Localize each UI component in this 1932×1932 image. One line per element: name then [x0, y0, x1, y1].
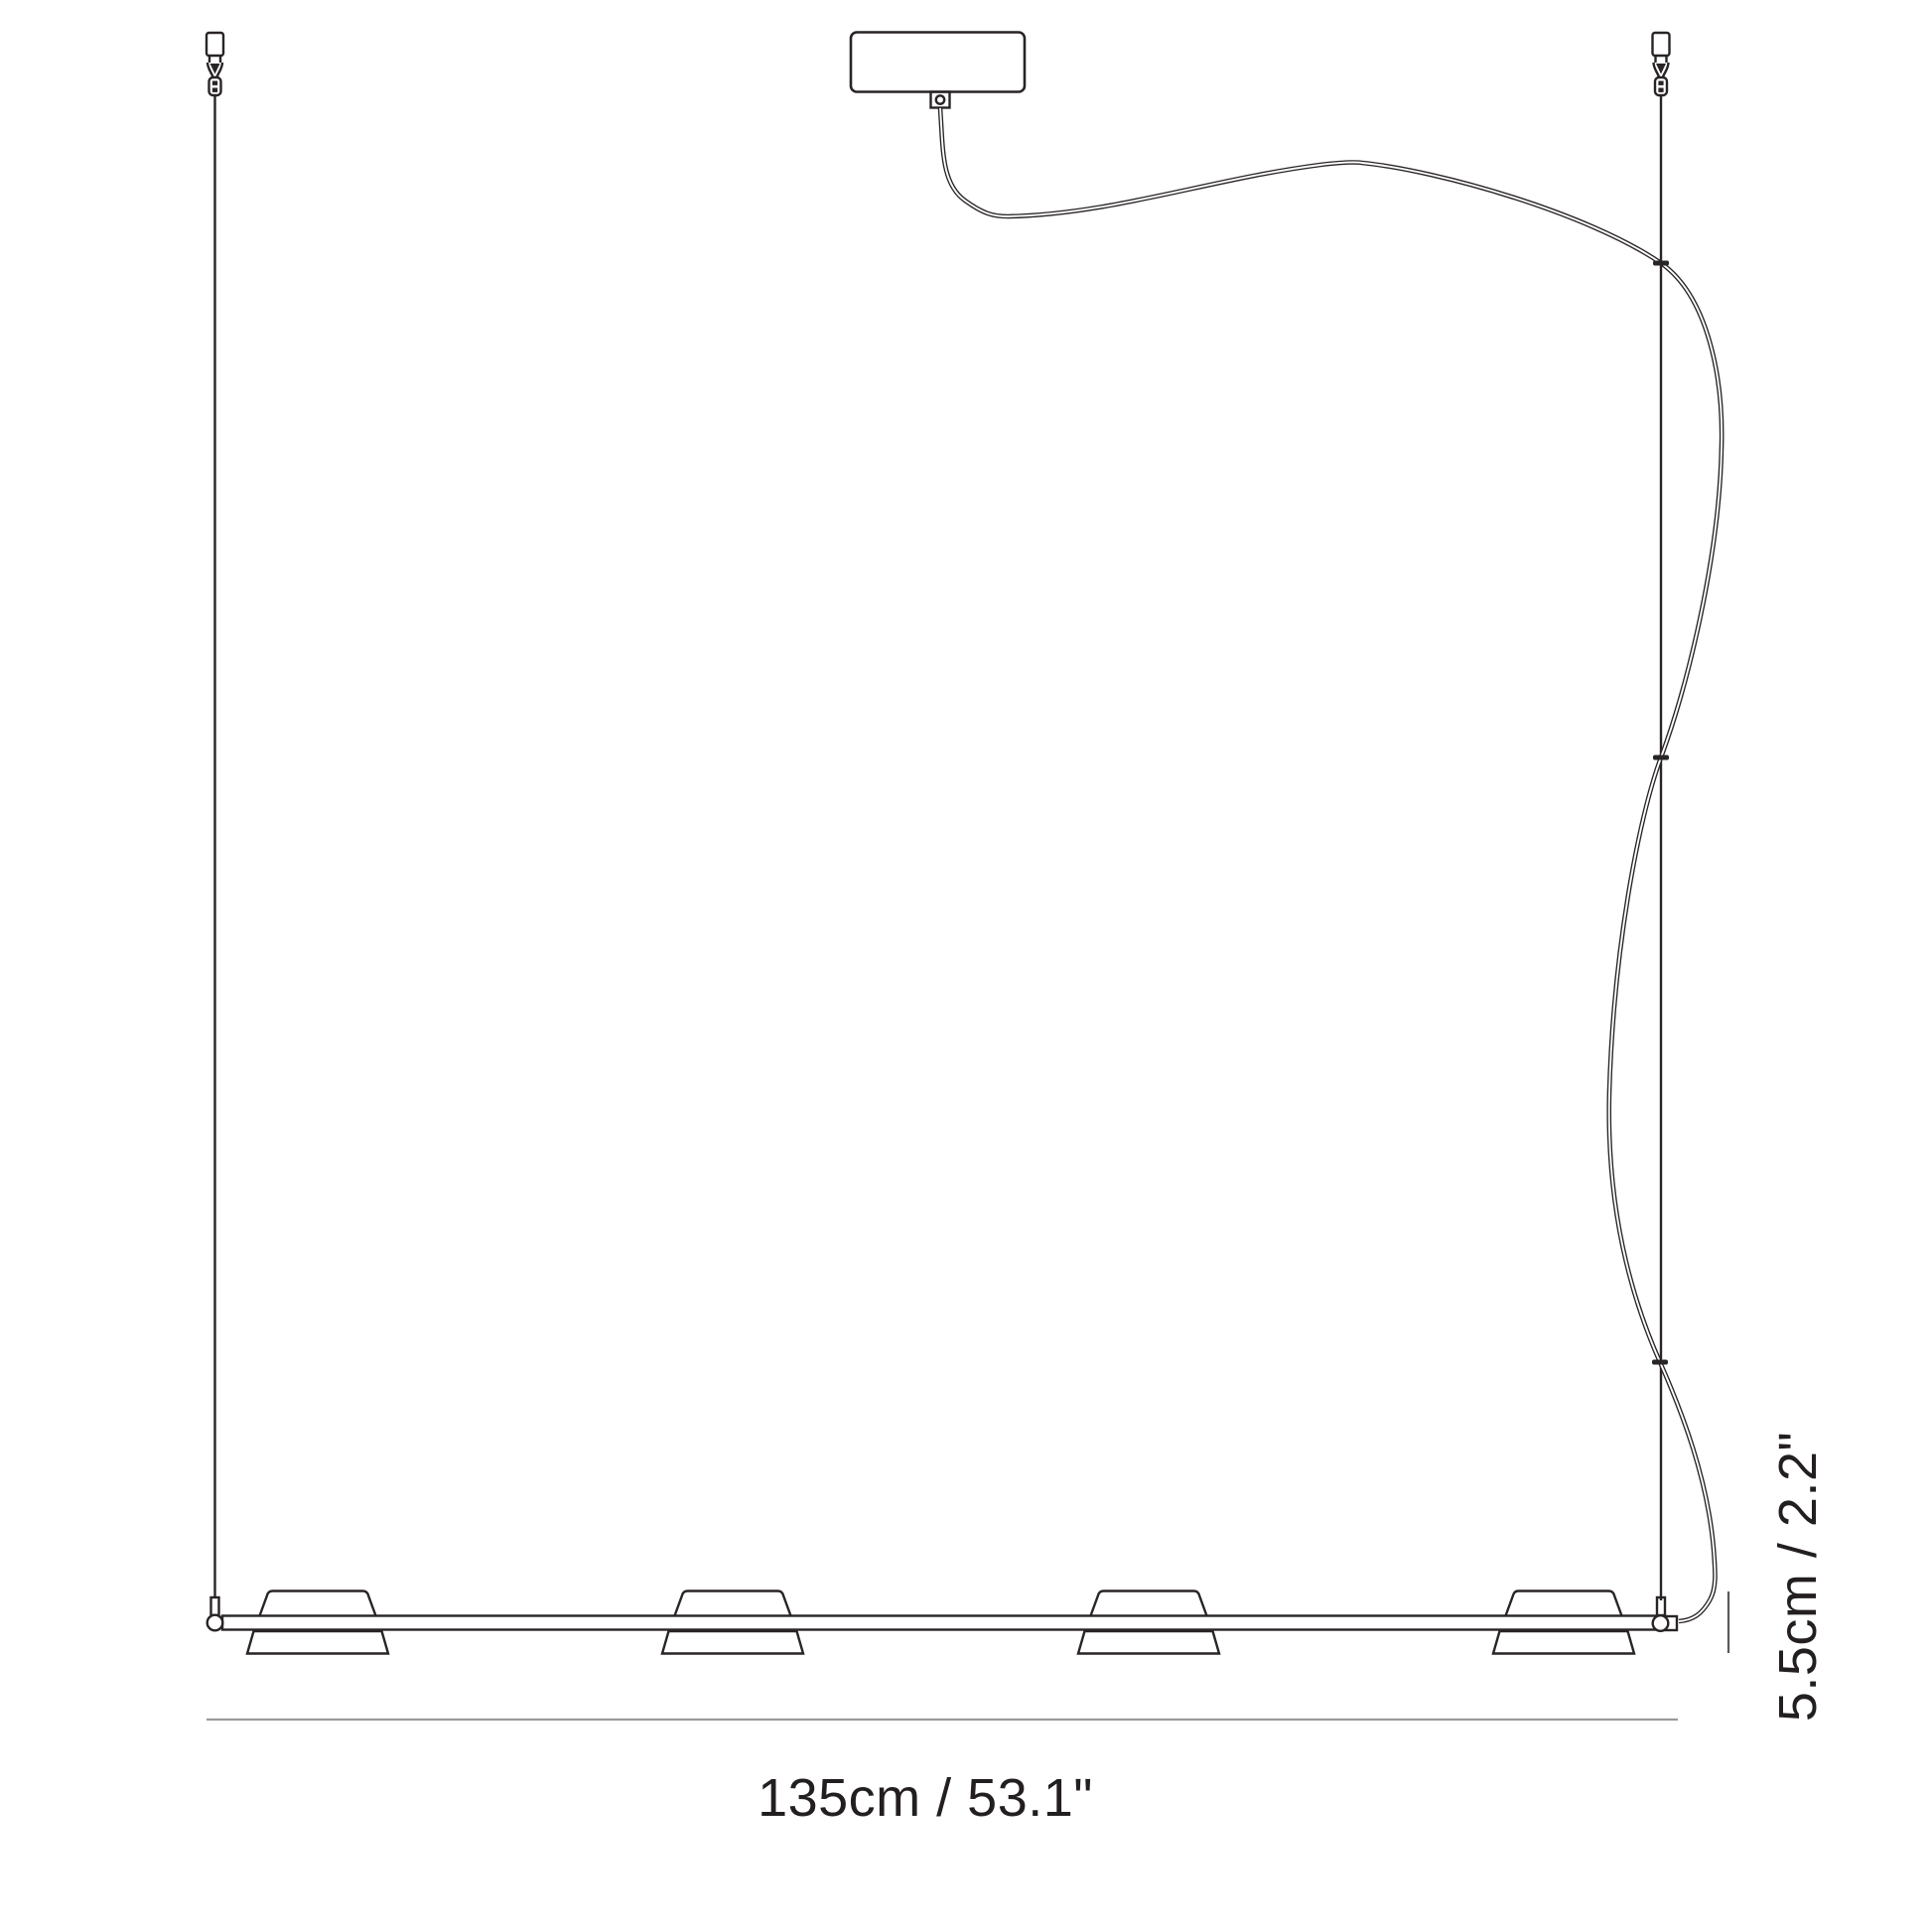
ceiling-anchor-left-icon	[207, 33, 223, 95]
pendant-light-dimension-diagram: 135cm / 53.1" 5.5cm / 2.2"	[0, 0, 1932, 1932]
power-cord	[940, 108, 1722, 1621]
cord-clip-1-icon	[1653, 261, 1669, 266]
end-cap-left	[207, 1597, 223, 1630]
ceiling-canopy	[851, 33, 1025, 108]
width-dimension-label: 135cm / 53.1"	[758, 1767, 1093, 1829]
end-cap-right	[1653, 1597, 1677, 1631]
fixture-bar	[222, 1616, 1665, 1630]
cord-clip-2-icon	[1653, 756, 1669, 760]
height-dimension-label: 5.5cm / 2.2"	[1767, 1432, 1829, 1722]
ceiling-anchor-right-icon	[1653, 33, 1670, 95]
diagram-canvas	[0, 0, 1932, 1932]
canopy-screw-icon	[936, 95, 944, 103]
cord-clip-3-icon	[1652, 1360, 1668, 1365]
